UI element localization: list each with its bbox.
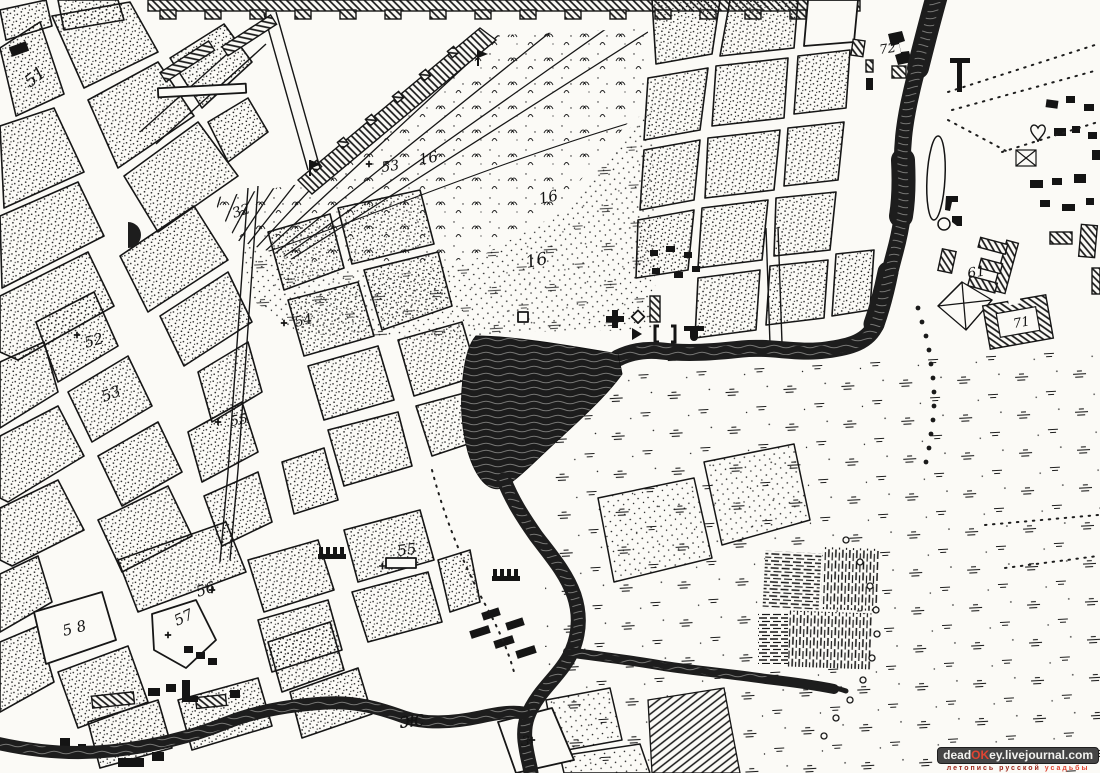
map-label-55: 55 — [229, 411, 249, 430]
watermark-site-suffix: ey.livejournal.com — [989, 748, 1093, 762]
map-label-53: 53 — [380, 158, 400, 176]
map-canvas: 515253325316161654555556575 8726171ж3 de… — [0, 0, 1100, 773]
x-parterre-small — [1016, 150, 1036, 166]
map-label-55: 55 — [396, 539, 417, 559]
watermark-tagline: летопись русской усадьбы — [937, 765, 1099, 772]
map-label-61: 61 — [966, 264, 986, 282]
watermark-site-accent: OK — [971, 748, 989, 762]
map-label-3: 3 — [521, 734, 530, 750]
hatched-plot — [648, 688, 740, 773]
watermark-site: deadOKey.livejournal.com — [937, 747, 1099, 764]
map-label-ж: ж — [398, 706, 425, 733]
tall-building — [650, 296, 660, 322]
engraved-map: 515253325316161654555556575 8726171ж3 — [0, 0, 1100, 773]
map-label-72: 72 — [878, 41, 896, 58]
watermark-site-prefix: dead — [943, 748, 971, 762]
small-square-building — [518, 312, 528, 322]
map-label-71: 71 — [1012, 314, 1031, 332]
watermark: deadOKey.livejournal.com летопись русско… — [937, 747, 1099, 772]
river-islet — [938, 218, 950, 230]
